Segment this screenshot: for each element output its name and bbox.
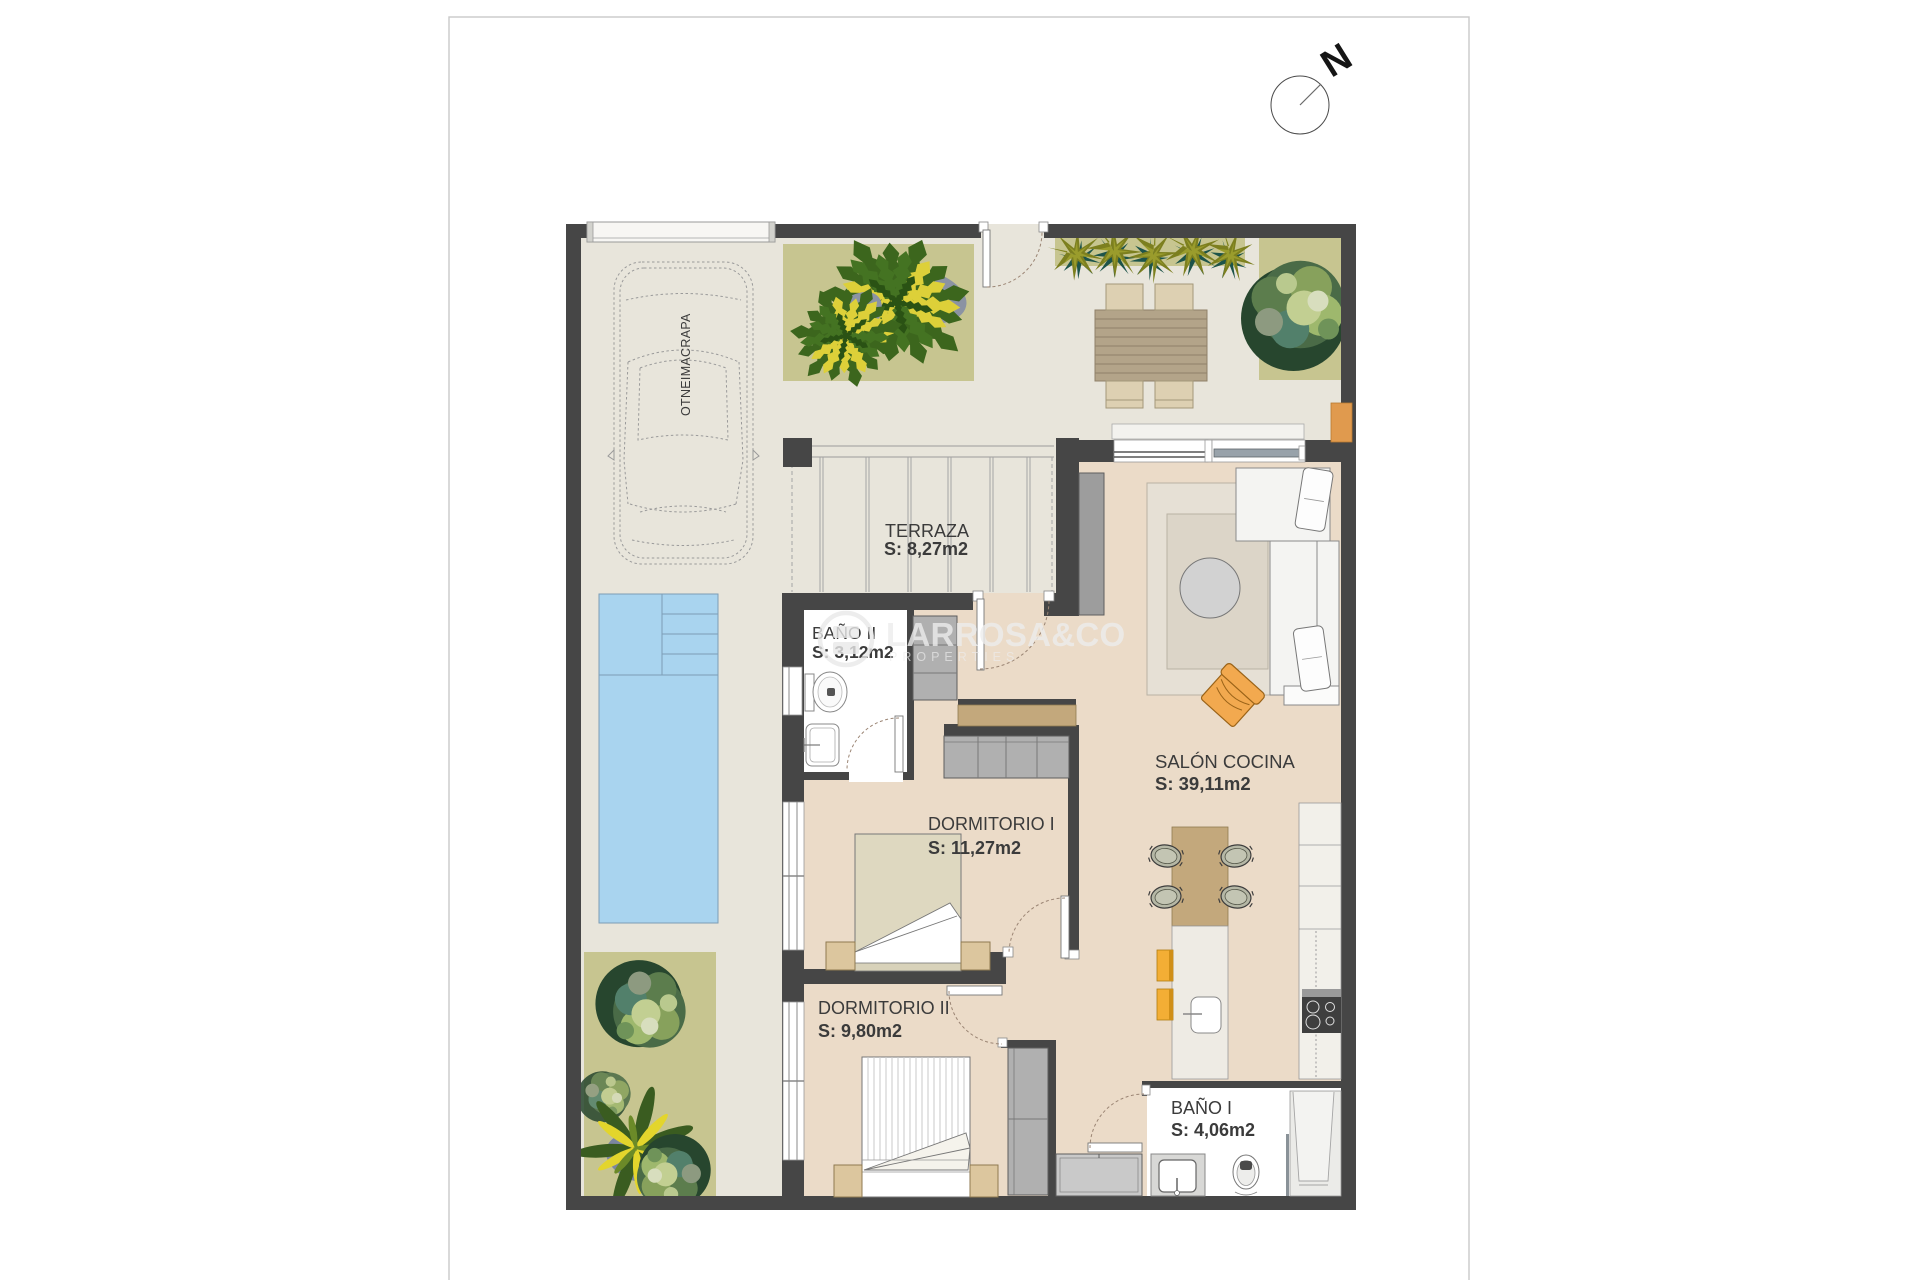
svg-text:OTNEIMACRAPA: OTNEIMACRAPA [679, 313, 693, 416]
svg-text:S: 9,80m2: S: 9,80m2 [818, 1021, 902, 1041]
svg-text:S: 39,11m2: S: 39,11m2 [1155, 773, 1251, 794]
svg-text:TERRAZA: TERRAZA [885, 521, 969, 541]
svg-text:DORMITORIO II: DORMITORIO II [818, 998, 950, 1018]
svg-text:SALÓN COCINA: SALÓN COCINA [1155, 751, 1295, 772]
svg-text:S: 11,27m2: S: 11,27m2 [928, 838, 1021, 858]
svg-text:LARROSA&CO: LARROSA&CO [886, 616, 1126, 653]
svg-text:BAÑO I: BAÑO I [1171, 1097, 1232, 1118]
svg-text:S: 8,27m2: S: 8,27m2 [884, 539, 968, 559]
svg-text:DORMITORIO I: DORMITORIO I [928, 814, 1055, 834]
svg-text:S: 4,06m2: S: 4,06m2 [1171, 1120, 1255, 1140]
svg-text:PROPERTIES: PROPERTIES [889, 650, 1019, 664]
